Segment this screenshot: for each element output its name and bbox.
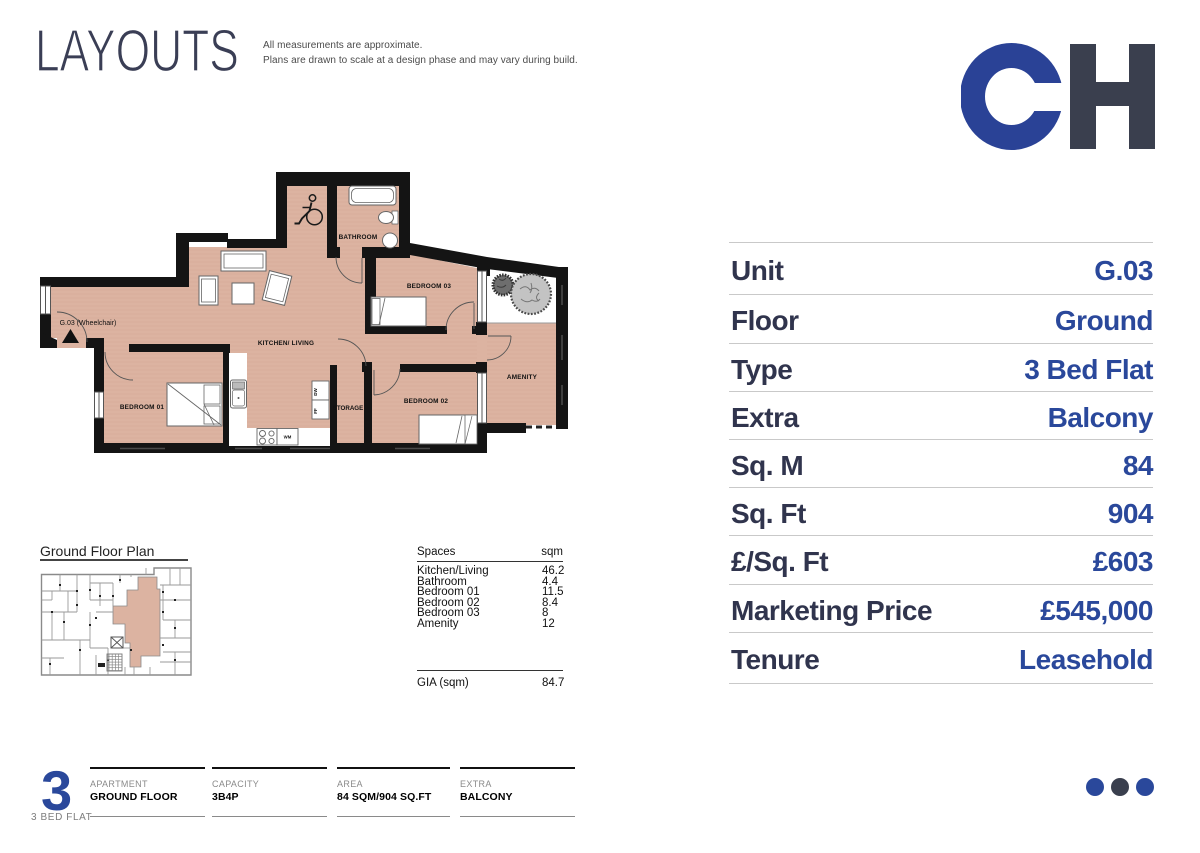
svg-text:BEDROOM 03: BEDROOM 03 — [407, 283, 452, 290]
svg-text:BEDROOM 02: BEDROOM 02 — [404, 398, 449, 405]
svg-text:AMENITY: AMENITY — [507, 374, 538, 381]
